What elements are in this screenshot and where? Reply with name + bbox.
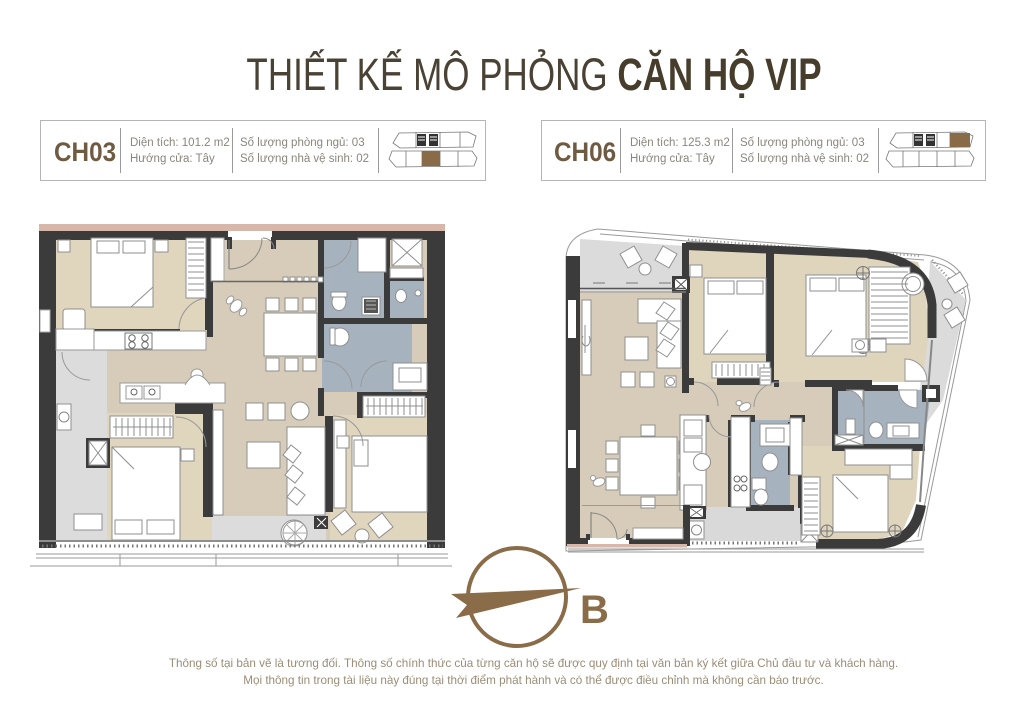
svg-text:B: B (580, 588, 609, 632)
